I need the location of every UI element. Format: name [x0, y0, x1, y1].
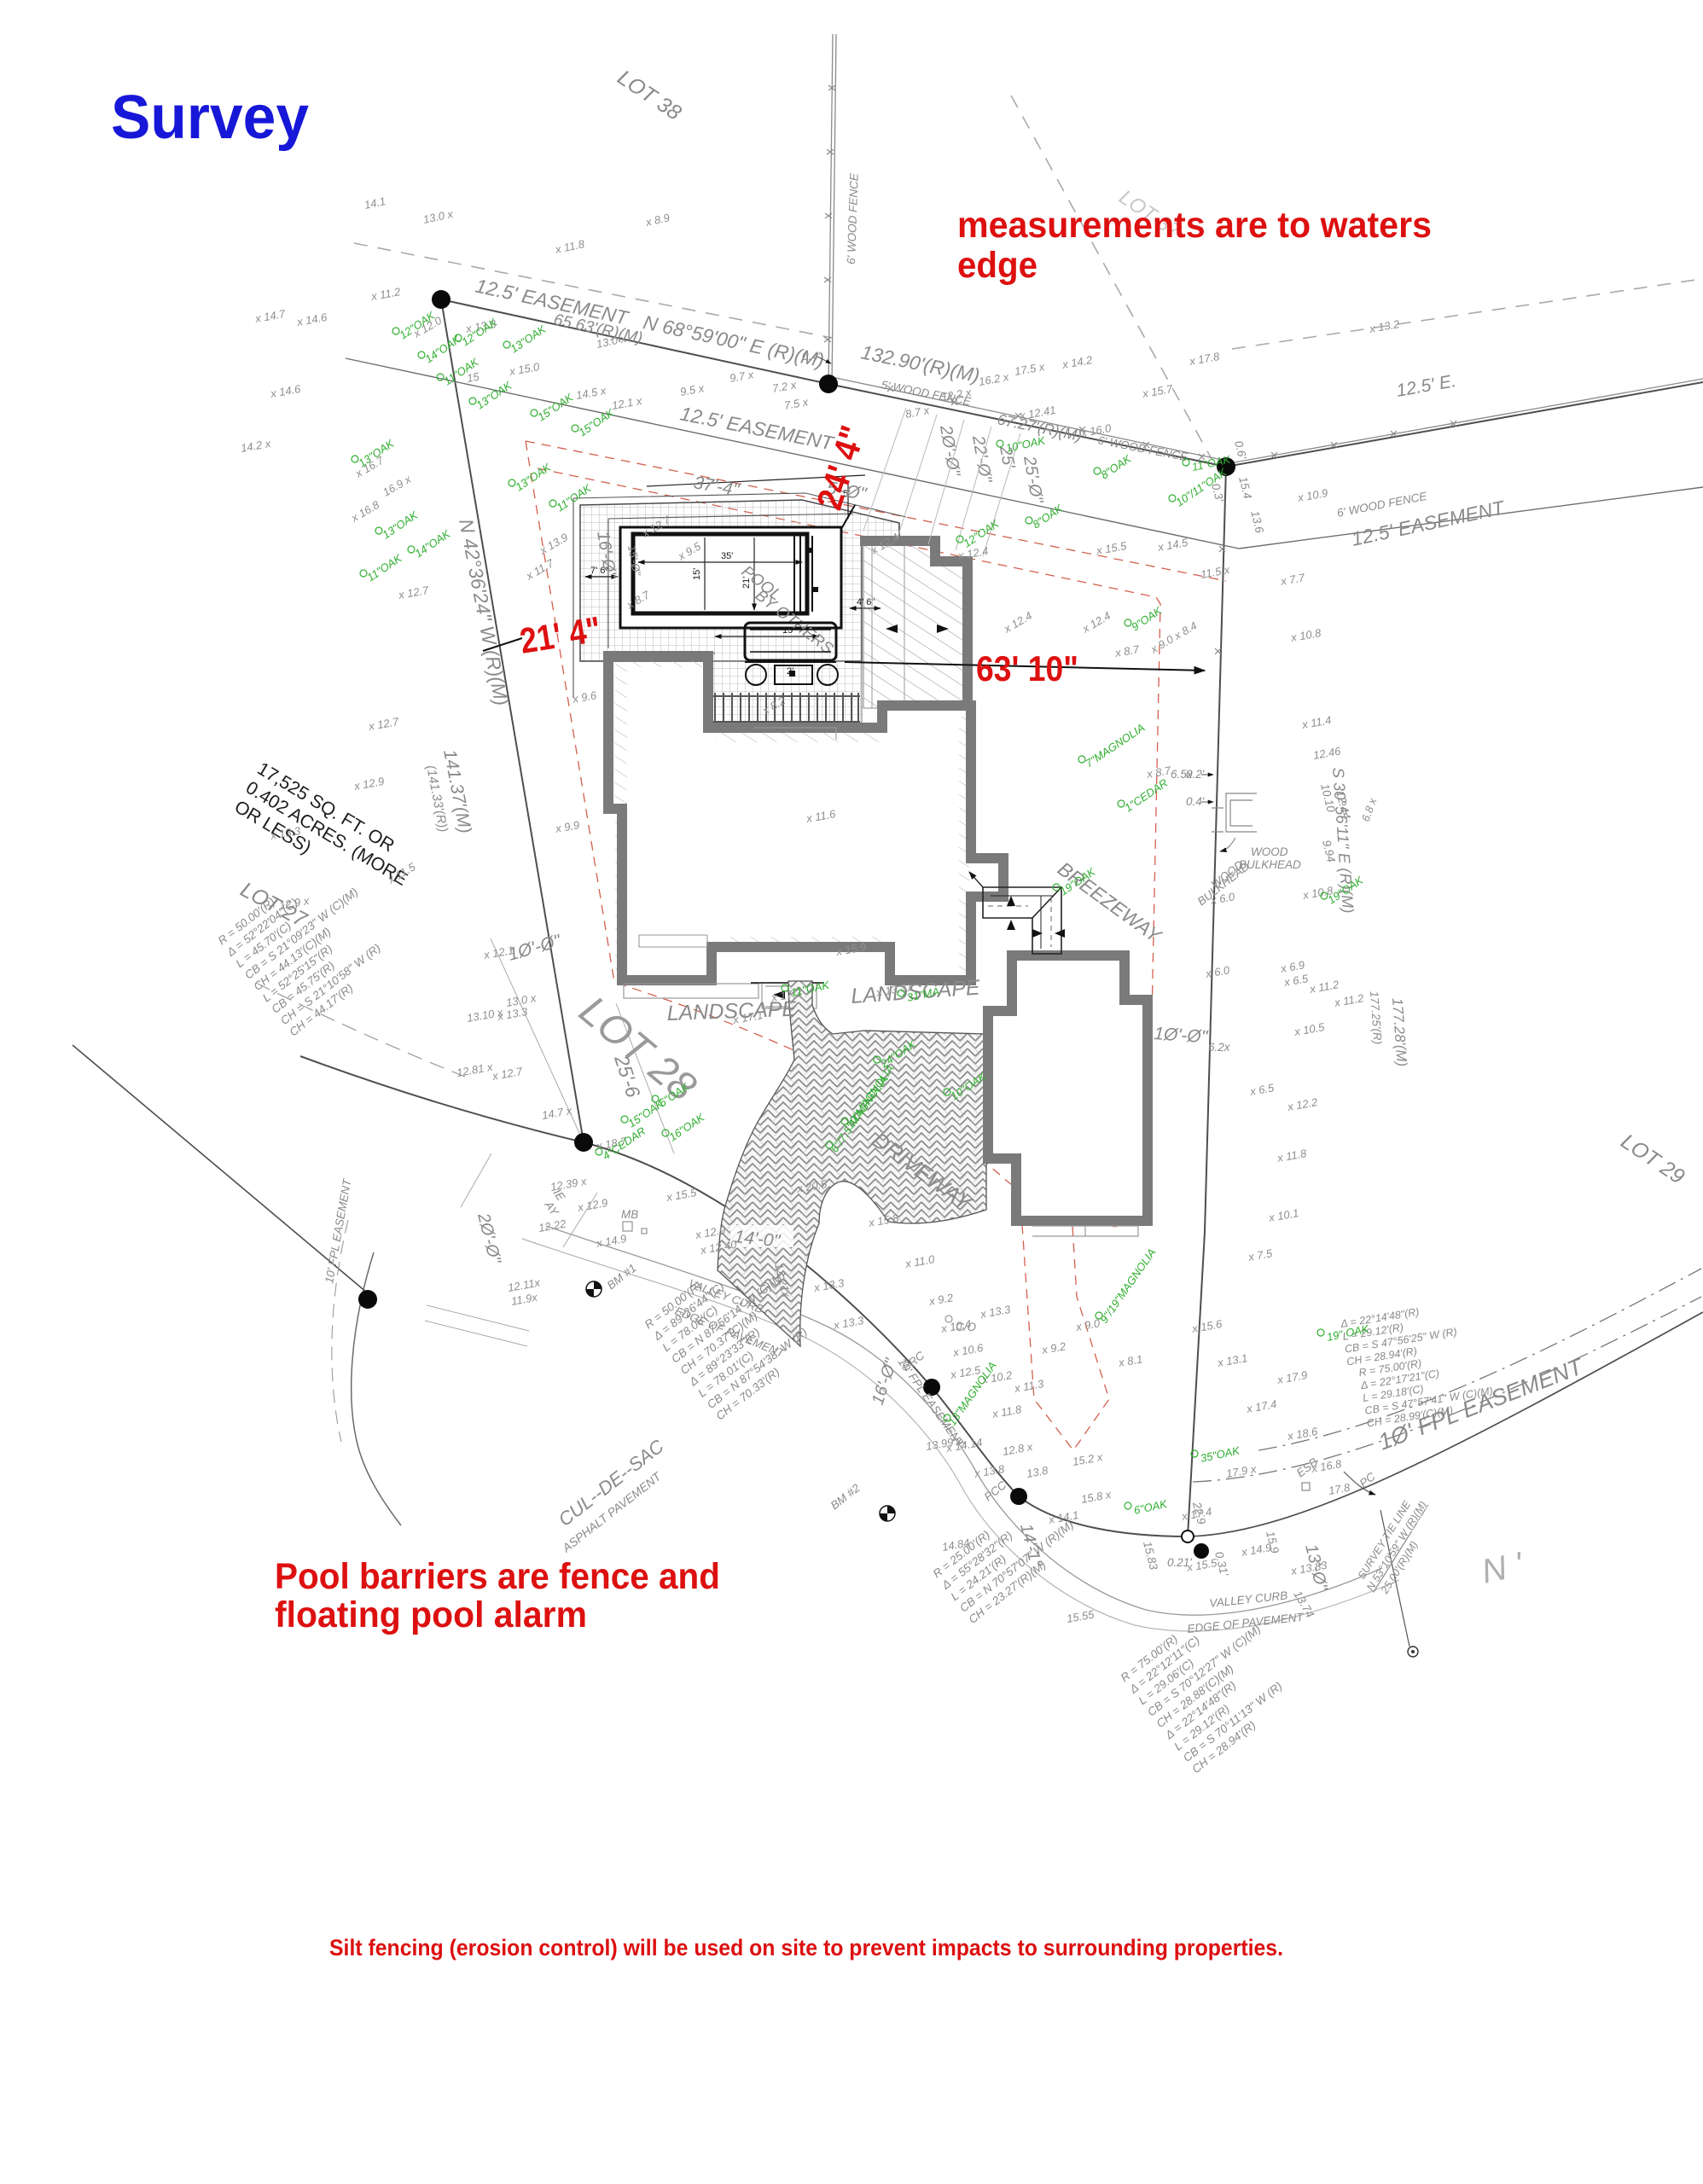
svg-text:1Ø'-Ø": 1Ø'-Ø": [1154, 1024, 1210, 1047]
svg-text:WOOD: WOOD: [1251, 845, 1288, 858]
svg-text:Silt fencing (erosion control): Silt fencing (erosion control) will be u…: [329, 1935, 1283, 1960]
svg-text:63' 10": 63' 10": [976, 648, 1078, 688]
svg-text:15': 15': [692, 568, 702, 580]
svg-text:6.2x: 6.2x: [1208, 1041, 1231, 1054]
svg-text:Pool barriers are fence and: Pool barriers are fence and: [275, 1556, 720, 1597]
svg-text:MB: MB: [621, 1208, 638, 1221]
svg-text:measurements are to waters: measurements are to waters: [957, 205, 1432, 246]
svg-text:0.4': 0.4': [802, 350, 821, 363]
svg-text:35': 35': [721, 551, 733, 561]
svg-text:edge: edge: [957, 245, 1037, 286]
svg-text:floating pool alarm: floating pool alarm: [275, 1594, 587, 1635]
svg-text:Survey: Survey: [111, 84, 309, 152]
